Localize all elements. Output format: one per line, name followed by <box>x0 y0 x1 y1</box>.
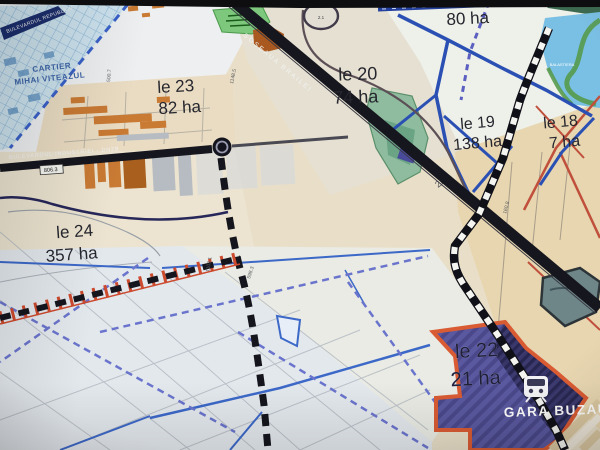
map-photo: BULEVARDUL REPUBLICII CARTIER MIHAI VITE… <box>0 0 600 450</box>
zone-le24-area-label: 357 ha <box>45 243 99 266</box>
zone-le18-area-label: 7 ha <box>548 133 581 153</box>
roundabout <box>213 138 232 157</box>
zone-80ha-area-label: 80 ha <box>446 8 490 29</box>
marker-m6: 806.3 <box>44 167 58 174</box>
marker-m7: 2.1 <box>318 15 325 20</box>
marker-box-806: 806.3 <box>40 164 64 175</box>
water-label: BALASTIERA <box>550 62 575 67</box>
zone-le18-id: le 18 <box>543 113 579 133</box>
zone-le23-area-label: 82 ha <box>158 97 202 118</box>
zone-le24-id: le 24 <box>56 221 94 243</box>
zone-le20-id: le 20 <box>338 63 378 84</box>
marker-m2: 500.7 <box>106 69 113 82</box>
zone-le23-id: le 23 <box>157 76 195 97</box>
zone-le19-id: le 19 <box>460 114 496 134</box>
zone-le22-area-label: 21 ha <box>450 367 502 392</box>
zone-le20-area-label: 74 ha <box>333 86 380 108</box>
zoning-map-canvas: BULEVARDUL REPUBLICII CARTIER MIHAI VITE… <box>0 0 600 450</box>
zone-le22-id: le 22 <box>454 339 498 363</box>
